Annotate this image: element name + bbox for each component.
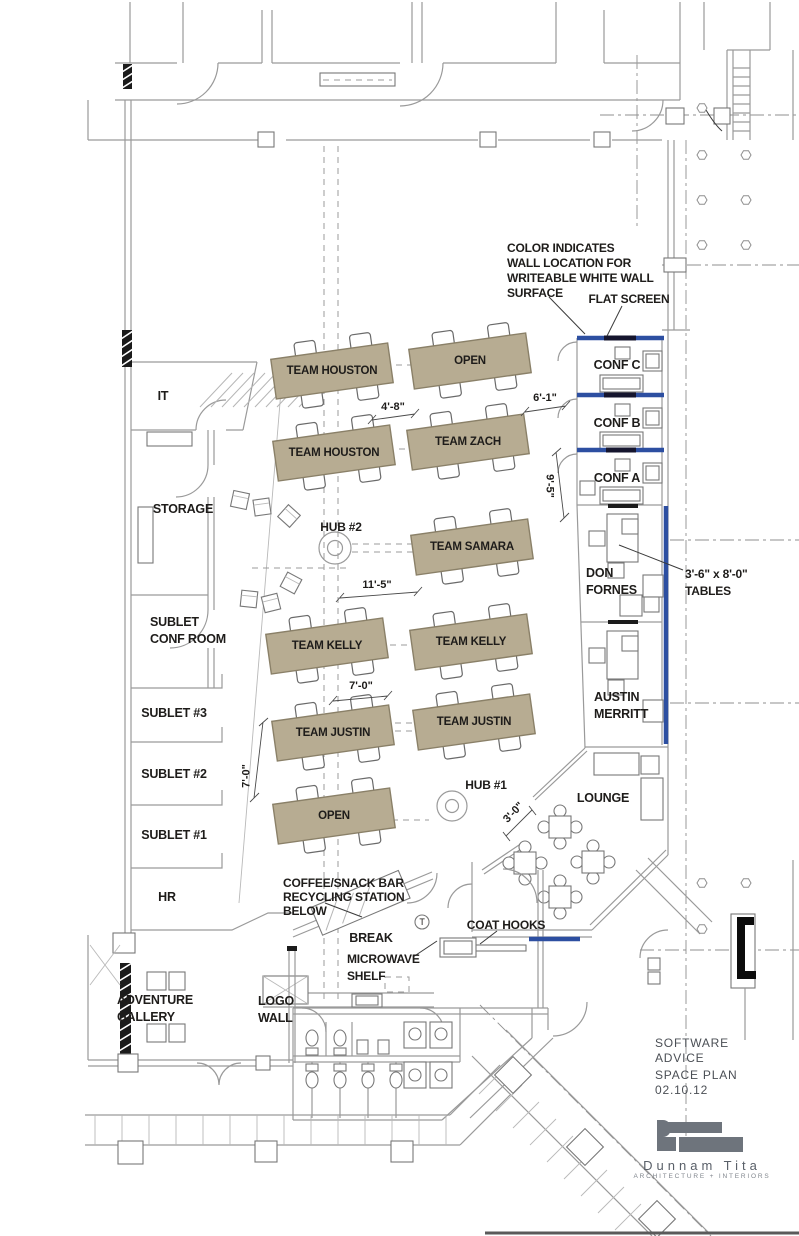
room-label-it: IT — [158, 389, 169, 403]
room-label-sublet-1: SUBLET #1 — [141, 828, 207, 842]
room-label-break: BREAK — [349, 931, 392, 945]
room-label-hr: HR — [158, 890, 176, 904]
room-label-adventure-gallery: ADVENTURE GALLERY — [117, 992, 193, 1026]
note-tables: 3'-6" x 8'-0" TABLES — [685, 566, 748, 600]
room-label-sublet-conf: SUBLET CONF ROOM — [150, 614, 226, 648]
dimension-label: 7'-0" — [349, 679, 373, 693]
desk-label: TEAM HOUSTON — [289, 446, 380, 460]
firm-logo — [657, 1120, 743, 1152]
room-label-sublet-2: SUBLET #2 — [141, 767, 207, 781]
desk-label: TEAM JUSTIN — [296, 726, 370, 740]
hub-lounge-chairs — [231, 491, 302, 613]
construction-lines — [252, 146, 429, 1002]
desk-label: OPEN — [454, 354, 486, 368]
dimension-label: 9'-5" — [542, 474, 557, 498]
note-microwave-shelf: MICROWAVE SHELF — [347, 951, 420, 985]
hub-1-label: HUB #1 — [465, 778, 506, 792]
desk-label: TEAM HOUSTON — [287, 364, 378, 378]
room-label-conf-a: CONF A — [594, 471, 640, 485]
hub-2-label: HUB #2 — [320, 520, 361, 534]
firm-tagline: ARCHITECTURE + INTERIORS — [634, 1170, 771, 1184]
desk-label: TEAM ZACH — [435, 435, 501, 449]
room-label-lounge: LOUNGE — [577, 791, 629, 805]
walls-left-rooms — [125, 100, 293, 937]
room-label-storage: STORAGE — [153, 502, 213, 516]
restrooms — [293, 1002, 587, 1120]
note-flat-screen: FLAT SCREEN — [589, 292, 670, 306]
walls-top — [88, 2, 770, 147]
desk-label: OPEN — [318, 809, 350, 823]
lounge-furniture — [503, 753, 663, 919]
dimension-label: 7'-0" — [240, 764, 255, 788]
grid-symbols — [697, 104, 751, 934]
desk-label: TEAM KELLY — [436, 635, 506, 649]
dimension-label: 6'-1" — [533, 391, 557, 405]
dimension-label: 11'-5" — [362, 578, 391, 592]
desk-label: TEAM JUSTIN — [437, 715, 511, 729]
desk-label: TEAM KELLY — [292, 639, 362, 653]
room-label-sublet-3: SUBLET #3 — [141, 706, 207, 720]
note-coffee-bar: COFFEE/SNACK BAR RECYCLING STATION BELOW — [283, 876, 405, 918]
room-label-austin-merritt: AUSTIN MERRITT — [594, 689, 648, 723]
title-block-plan-title: SPACE PLAN 02.10.12 — [655, 1068, 737, 1098]
note-coat-hooks: COAT HOOKS — [467, 918, 545, 932]
stairs-top-right — [664, 50, 793, 1040]
room-label-conf-c: CONF C — [594, 358, 641, 372]
desk-label: TEAM SAMARA — [430, 540, 514, 554]
thermostat-symbol: T — [419, 915, 424, 929]
room-label-conf-b: CONF B — [594, 416, 641, 430]
dimension-label: 4'-8" — [381, 400, 405, 414]
room-label-don-fornes: DON FORNES — [586, 565, 637, 599]
title-block-client: SOFTWARE ADVICE — [655, 1036, 729, 1066]
floor-plan: IT STORAGE SUBLET CONF ROOM SUBLET #3 SU… — [0, 0, 799, 1236]
room-label-logo-wall: LOGO WALL — [258, 993, 294, 1027]
